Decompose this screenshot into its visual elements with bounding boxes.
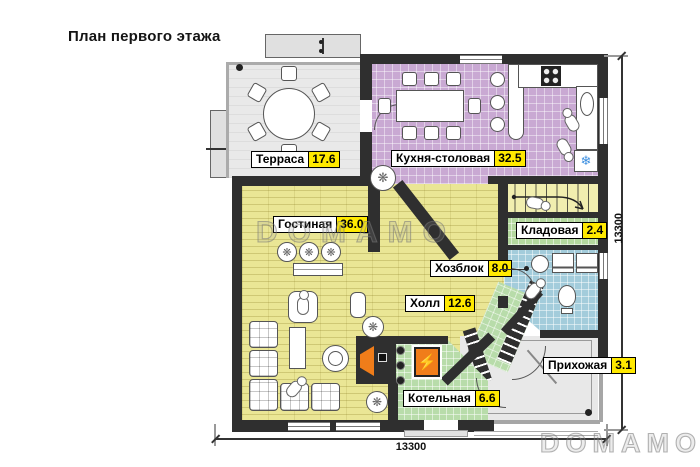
thin-wall [599,372,603,422]
sofa-module [249,350,278,377]
washing-machine [552,253,574,273]
chimney-block [265,34,361,58]
room-label-living: Гостиная36.0 [273,216,368,233]
sofa-module [249,321,278,348]
dim-value-bottom: 13300 [381,441,441,453]
fireplace-vent [378,353,387,362]
sofa-module [311,383,340,411]
plant: ❋ [366,391,388,413]
plant: ❋ [370,165,396,191]
dining-chair [402,72,417,86]
toilet-tank [561,308,573,314]
toilet [558,285,576,307]
wall [504,245,598,250]
dining-chair [424,72,439,86]
boiler-unit: ⚡ [414,347,440,377]
wall [498,296,508,308]
exterior-step [404,430,468,437]
console-shelf [293,263,343,276]
chimney-dim-dot [319,49,323,53]
terrace-round-table [263,88,315,140]
ceiling-light: ❋ [299,242,319,262]
label-leader-line [500,269,526,270]
wall [232,176,372,186]
room-label-boiler: Котельная6.6 [403,390,500,407]
dim-extension-line [604,55,628,57]
window [599,253,608,279]
room-label-entry: Прихожая3.1 [543,357,636,374]
ceiling-light: ❋ [321,242,341,262]
room-label-storage: Кладовая2.4 [516,222,607,239]
door-opening [360,100,372,132]
wall [540,330,608,338]
column-dot [585,409,592,416]
washing-machine [576,253,598,273]
wall [388,380,398,422]
dining-chair [468,98,481,114]
person-figure [297,297,309,315]
coffee-table [289,327,306,369]
dining-chair [424,126,439,140]
dining-chair [378,98,391,114]
valve-knob [396,361,405,370]
valve-knob [396,346,405,355]
thin-wall [494,420,600,424]
room-label-kitchen: Кухня-столовая32.5 [391,150,526,167]
floor-plan-canvas: План первого этажа [0,0,700,467]
room-label-hall: Холл12.6 [405,295,475,312]
bar-stool [490,117,505,132]
stove-icon [541,66,561,86]
snowflake-icon: ❄ [581,153,592,169]
room-label-terrace: Терраса17.6 [251,151,340,168]
dim-value-right: 13300 [613,213,625,244]
column-dot [236,64,243,71]
fridge: ❄ [574,150,598,172]
dining-chair [446,72,461,86]
wall [368,184,380,252]
page-title: План первого этажа [68,28,221,45]
window [288,422,330,431]
window [460,55,502,64]
window [599,98,608,144]
plant: ❋ [362,316,384,338]
swivel-chair-seat [328,351,343,366]
dining-chair [402,126,417,140]
bar-stool [490,95,505,110]
dim-line-bottom [215,438,607,440]
valve-knob [396,376,405,385]
label-leader-dot [524,266,529,271]
kitchen-sink [580,92,594,116]
sofa-module [249,379,278,411]
dining-table [396,90,464,122]
stairs-direction-arrow [504,180,598,214]
side-table [350,292,366,318]
ceiling-light: ❋ [277,242,297,262]
terrace-chair [281,66,297,81]
dim-extension-line [604,429,628,431]
bar-stool [490,72,505,87]
window [336,422,380,431]
dim-extension-line [214,424,216,446]
wall [232,176,242,422]
lightning-icon: ⚡ [418,353,437,371]
bathroom-sink [531,255,549,273]
chimney-dim-dot [319,40,323,44]
dining-chair [446,126,461,140]
